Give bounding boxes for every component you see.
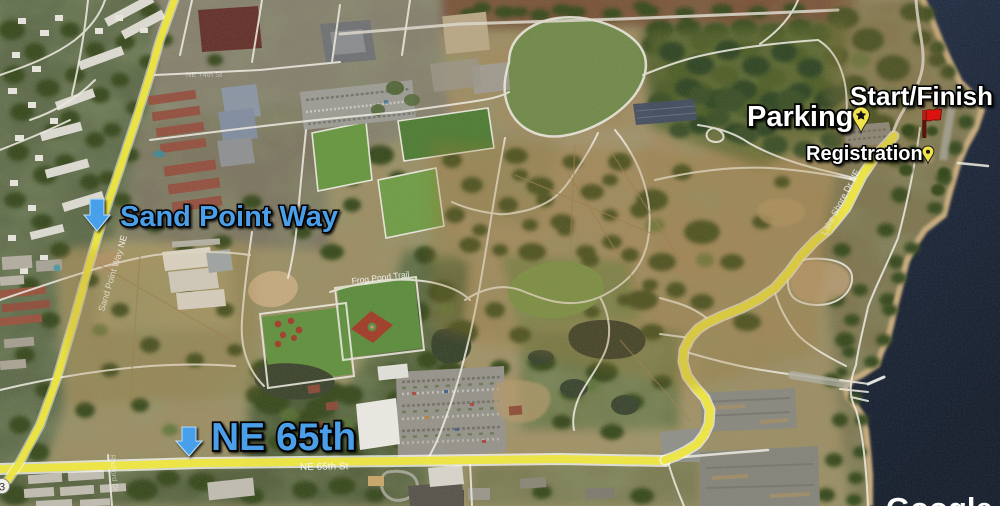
svg-text:3: 3 xyxy=(0,482,5,494)
svg-text:Parking: Parking xyxy=(747,101,853,133)
svg-text:Start/Finish: Start/Finish xyxy=(850,81,993,111)
svg-text:Registration: Registration xyxy=(806,143,923,165)
svg-text:Google: Google xyxy=(886,491,993,506)
svg-text:Sand Point Way: Sand Point Way xyxy=(120,201,338,233)
svg-text:NE 65th: NE 65th xyxy=(211,416,356,459)
